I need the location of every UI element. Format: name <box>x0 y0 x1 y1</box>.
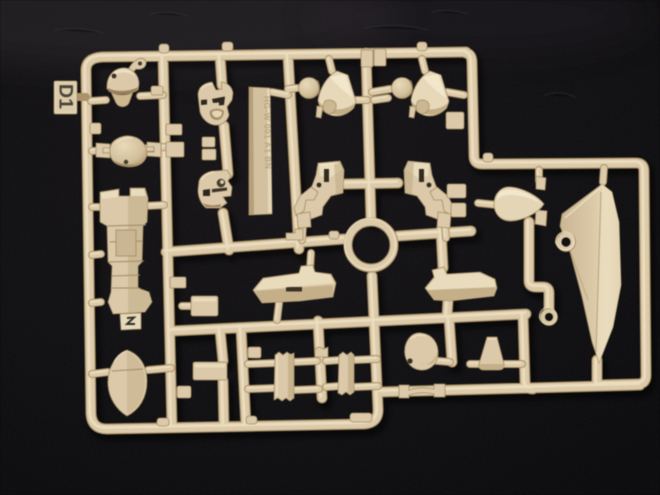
svg-text:HG-W 001 A1 BN: HG-W 001 A1 BN <box>262 96 273 169</box>
svg-text:D1: D1 <box>55 84 77 109</box>
